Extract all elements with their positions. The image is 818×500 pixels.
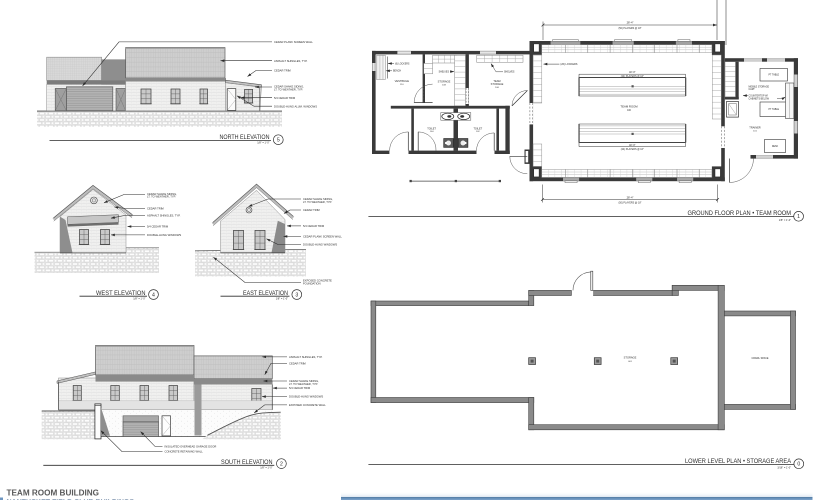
svg-text:LOWER LEVEL PLAN • STORAGE ARE: LOWER LEVEL PLAN • STORAGE AREA [685, 458, 792, 465]
svg-text:MOBILE STORAGE: MOBILE STORAGE [749, 85, 770, 88]
svg-text:STORAGE: STORAGE [438, 80, 451, 84]
svg-text:CEDAR PLANK SCREEN WALL: CEDAR PLANK SCREEN WALL [274, 40, 313, 44]
svg-text:(26) LOCKERS: (26) LOCKERS [560, 63, 577, 66]
svg-text:SOUTH ELEVATION: SOUTH ELEVATION [221, 459, 273, 466]
svg-text:CEDAR TRIM: CEDAR TRIM [289, 362, 306, 366]
svg-text:(24) PLAYERS @ 16": (24) PLAYERS @ 16" [621, 75, 644, 78]
svg-text:28'-4": 28'-4" [627, 195, 634, 199]
svg-text:SHELVES: SHELVES [439, 72, 450, 74]
svg-text:1/8" = 1'-0": 1/8" = 1'-0" [779, 219, 791, 222]
svg-text:1/8" = 1'-0": 1/8" = 1'-0" [276, 298, 288, 301]
svg-text:5/4 CEDAR TRIM: 5/4 CEDAR TRIM [147, 225, 169, 229]
svg-text:TEAM ROOM BUILDING: TEAM ROOM BUILDING [7, 487, 100, 497]
svg-text:5/4 CEDAR TRIM: 5/4 CEDAR TRIM [303, 224, 325, 228]
svg-text:CEDAR PLANK SCREEN WALL: CEDAR PLANK SCREEN WALL [303, 235, 342, 239]
svg-text:DOUBLE-HUNG WINDOWS: DOUBLE-HUNG WINDOWS [147, 233, 181, 237]
svg-text:2: 2 [280, 462, 283, 468]
svg-text:1/8" = 1'-0": 1/8" = 1'-0" [260, 467, 272, 470]
svg-text:CRAWL SPACE: CRAWL SPACE [751, 357, 768, 360]
svg-text:5/4 CEDAR TRIM: 5/4 CEDAR TRIM [289, 386, 311, 390]
svg-text:(50) PLAYERS @ 18": (50) PLAYERS @ 18" [618, 202, 641, 205]
svg-text:3: 3 [295, 292, 298, 298]
svg-text:5: 5 [277, 138, 280, 144]
svg-text:1: 1 [797, 214, 800, 220]
svg-text:CONCRETE RETAINING WALL: CONCRETE RETAINING WALL [165, 450, 204, 454]
svg-text:COUNTERTOP W/: COUNTERTOP W/ [749, 96, 769, 98]
svg-text:EAST ELEVATION: EAST ELEVATION [243, 290, 288, 297]
svg-text:CEDAR TRIM: CEDAR TRIM [274, 69, 291, 73]
svg-text:32'-0": 32'-0" [629, 70, 636, 74]
svg-text:1/8" = 1'-0": 1/8" = 1'-0" [133, 298, 145, 301]
svg-text:ASPHALT SHINGLES, TYP.: ASPHALT SHINGLES, TYP. [147, 214, 181, 218]
svg-text:CEDAR TRIM: CEDAR TRIM [147, 207, 164, 211]
svg-text:4: 4 [152, 292, 155, 298]
svg-text:LT. TO WEATHER, TYP.: LT. TO WEATHER, TYP. [147, 195, 176, 199]
svg-text:PT TABLE: PT TABLE [768, 108, 779, 111]
svg-text:0: 0 [797, 462, 800, 468]
svg-text:ASPHALT SHINGLES, TYP.: ASPHALT SHINGLES, TYP. [289, 355, 323, 359]
svg-text:28'-4": 28'-4" [627, 20, 634, 24]
svg-text:(24) PLAYERS @ 16": (24) PLAYERS @ 16" [621, 148, 644, 151]
svg-text:DOUBLE-HUNG WINDOWS: DOUBLE-HUNG WINDOWS [303, 243, 337, 247]
svg-text:CART: CART [749, 88, 756, 91]
svg-text:STORAGE: STORAGE [491, 82, 504, 86]
svg-text:DOUBLE-HUNG ALUM. WINDOWS: DOUBLE-HUNG ALUM. WINDOWS [274, 104, 317, 108]
svg-text:BENCH: BENCH [393, 71, 401, 73]
svg-text:EXPOSED CONCRETE WALL: EXPOSED CONCRETE WALL [289, 403, 326, 407]
svg-text:TOILET: TOILET [473, 127, 482, 130]
svg-text:FOUNDATION: FOUNDATION [303, 281, 321, 285]
svg-text:VESTIBULE: VESTIBULE [395, 79, 410, 83]
svg-text:LT. TO WEATHER, TYP.: LT. TO WEATHER, TYP. [303, 200, 332, 204]
svg-text:LT. TO WEATHER, TYP.: LT. TO WEATHER, TYP. [274, 87, 303, 91]
svg-text:SHELVES: SHELVES [504, 72, 515, 74]
svg-text:32'-0": 32'-0" [629, 143, 636, 147]
svg-text:INSULATED OVERHEAD GARAGE DOOR: INSULATED OVERHEAD GARAGE DOOR [165, 445, 217, 449]
svg-text:TRAINER: TRAINER [749, 125, 761, 129]
svg-text:DOUBLE-HUNG WINDOWS: DOUBLE-HUNG WINDOWS [289, 395, 323, 399]
svg-text:(6) LOCKERS: (6) LOCKERS [395, 63, 410, 65]
svg-text:(50) PLAYERS @ 18": (50) PLAYERS @ 18" [618, 27, 641, 30]
svg-text:LT. TO WEATHER, TYP.: LT. TO WEATHER, TYP. [289, 382, 318, 386]
svg-text:TOILET: TOILET [427, 127, 436, 130]
svg-text:STORAGE: STORAGE [624, 356, 637, 360]
svg-text:CABINETS BELOW: CABINETS BELOW [749, 97, 770, 100]
svg-text:WEST ELEVATION: WEST ELEVATION [96, 290, 146, 297]
svg-text:GROUND FLOOR PLAN • TEAM ROOM: GROUND FLOOR PLAN • TEAM ROOM [688, 210, 792, 217]
svg-text:DESK: DESK [772, 146, 779, 148]
svg-text:TEAM ROOM: TEAM ROOM [620, 105, 638, 109]
svg-text:PT TABLE: PT TABLE [768, 74, 779, 77]
svg-text:3/16" = 1'-0": 3/16" = 1'-0" [777, 466, 791, 469]
svg-text:5/4 CEDAR TRIM: 5/4 CEDAR TRIM [274, 96, 296, 100]
svg-text:CEDAR TRIM: CEDAR TRIM [303, 208, 320, 212]
svg-text:ASPHALT SHINGLES, TYP.: ASPHALT SHINGLES, TYP. [274, 59, 308, 63]
svg-text:1/8" = 1'-0": 1/8" = 1'-0" [257, 142, 269, 145]
svg-text:NORTH ELEVATION: NORTH ELEVATION [220, 134, 270, 141]
